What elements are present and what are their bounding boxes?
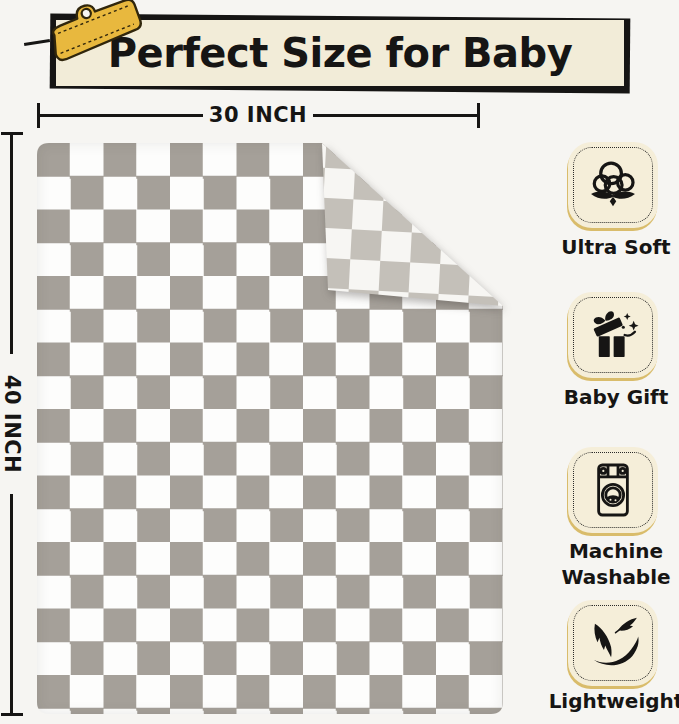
width-dimension-tick-right	[477, 103, 480, 128]
height-dimension-line-top	[10, 134, 13, 354]
feature-label-machine-washable: Machine Washable	[538, 538, 679, 590]
blanket-photo	[37, 143, 503, 714]
feature-tile-lightweight	[568, 600, 658, 686]
gift-icon	[582, 304, 644, 366]
feature-label-baby-gift: Baby Gift	[538, 384, 679, 410]
feature-tile-ultra-soft	[568, 142, 658, 228]
page-title: Perfect Size for Baby	[108, 30, 573, 76]
feather-icon	[582, 612, 644, 674]
blanket-folded-corner	[37, 143, 503, 714]
washing-machine-icon	[583, 458, 643, 522]
feature-label-ultra-soft: Ultra Soft	[538, 234, 679, 260]
clipboard-clip-icon	[36, 0, 146, 62]
feature-label-lightweight: Lightweight	[538, 688, 679, 714]
feature-tile-machine-washable	[568, 447, 658, 533]
cotton-icon	[582, 154, 644, 216]
height-dimension-label: 40 INCH	[0, 375, 24, 473]
product-infographic: Perfect Size for Baby 30 INCH 40 INCH	[0, 0, 679, 724]
height-dimension-tick-bottom	[1, 713, 23, 716]
blanket-back-pattern	[286, 143, 503, 350]
blanket-fold-flap	[37, 143, 503, 714]
width-dimension-line-left	[39, 114, 203, 117]
width-dimension-label: 30 INCH	[209, 103, 307, 127]
feature-tile-baby-gift	[568, 292, 658, 378]
height-dimension-line-bottom	[10, 494, 13, 714]
width-dimension-line-right	[313, 114, 477, 117]
